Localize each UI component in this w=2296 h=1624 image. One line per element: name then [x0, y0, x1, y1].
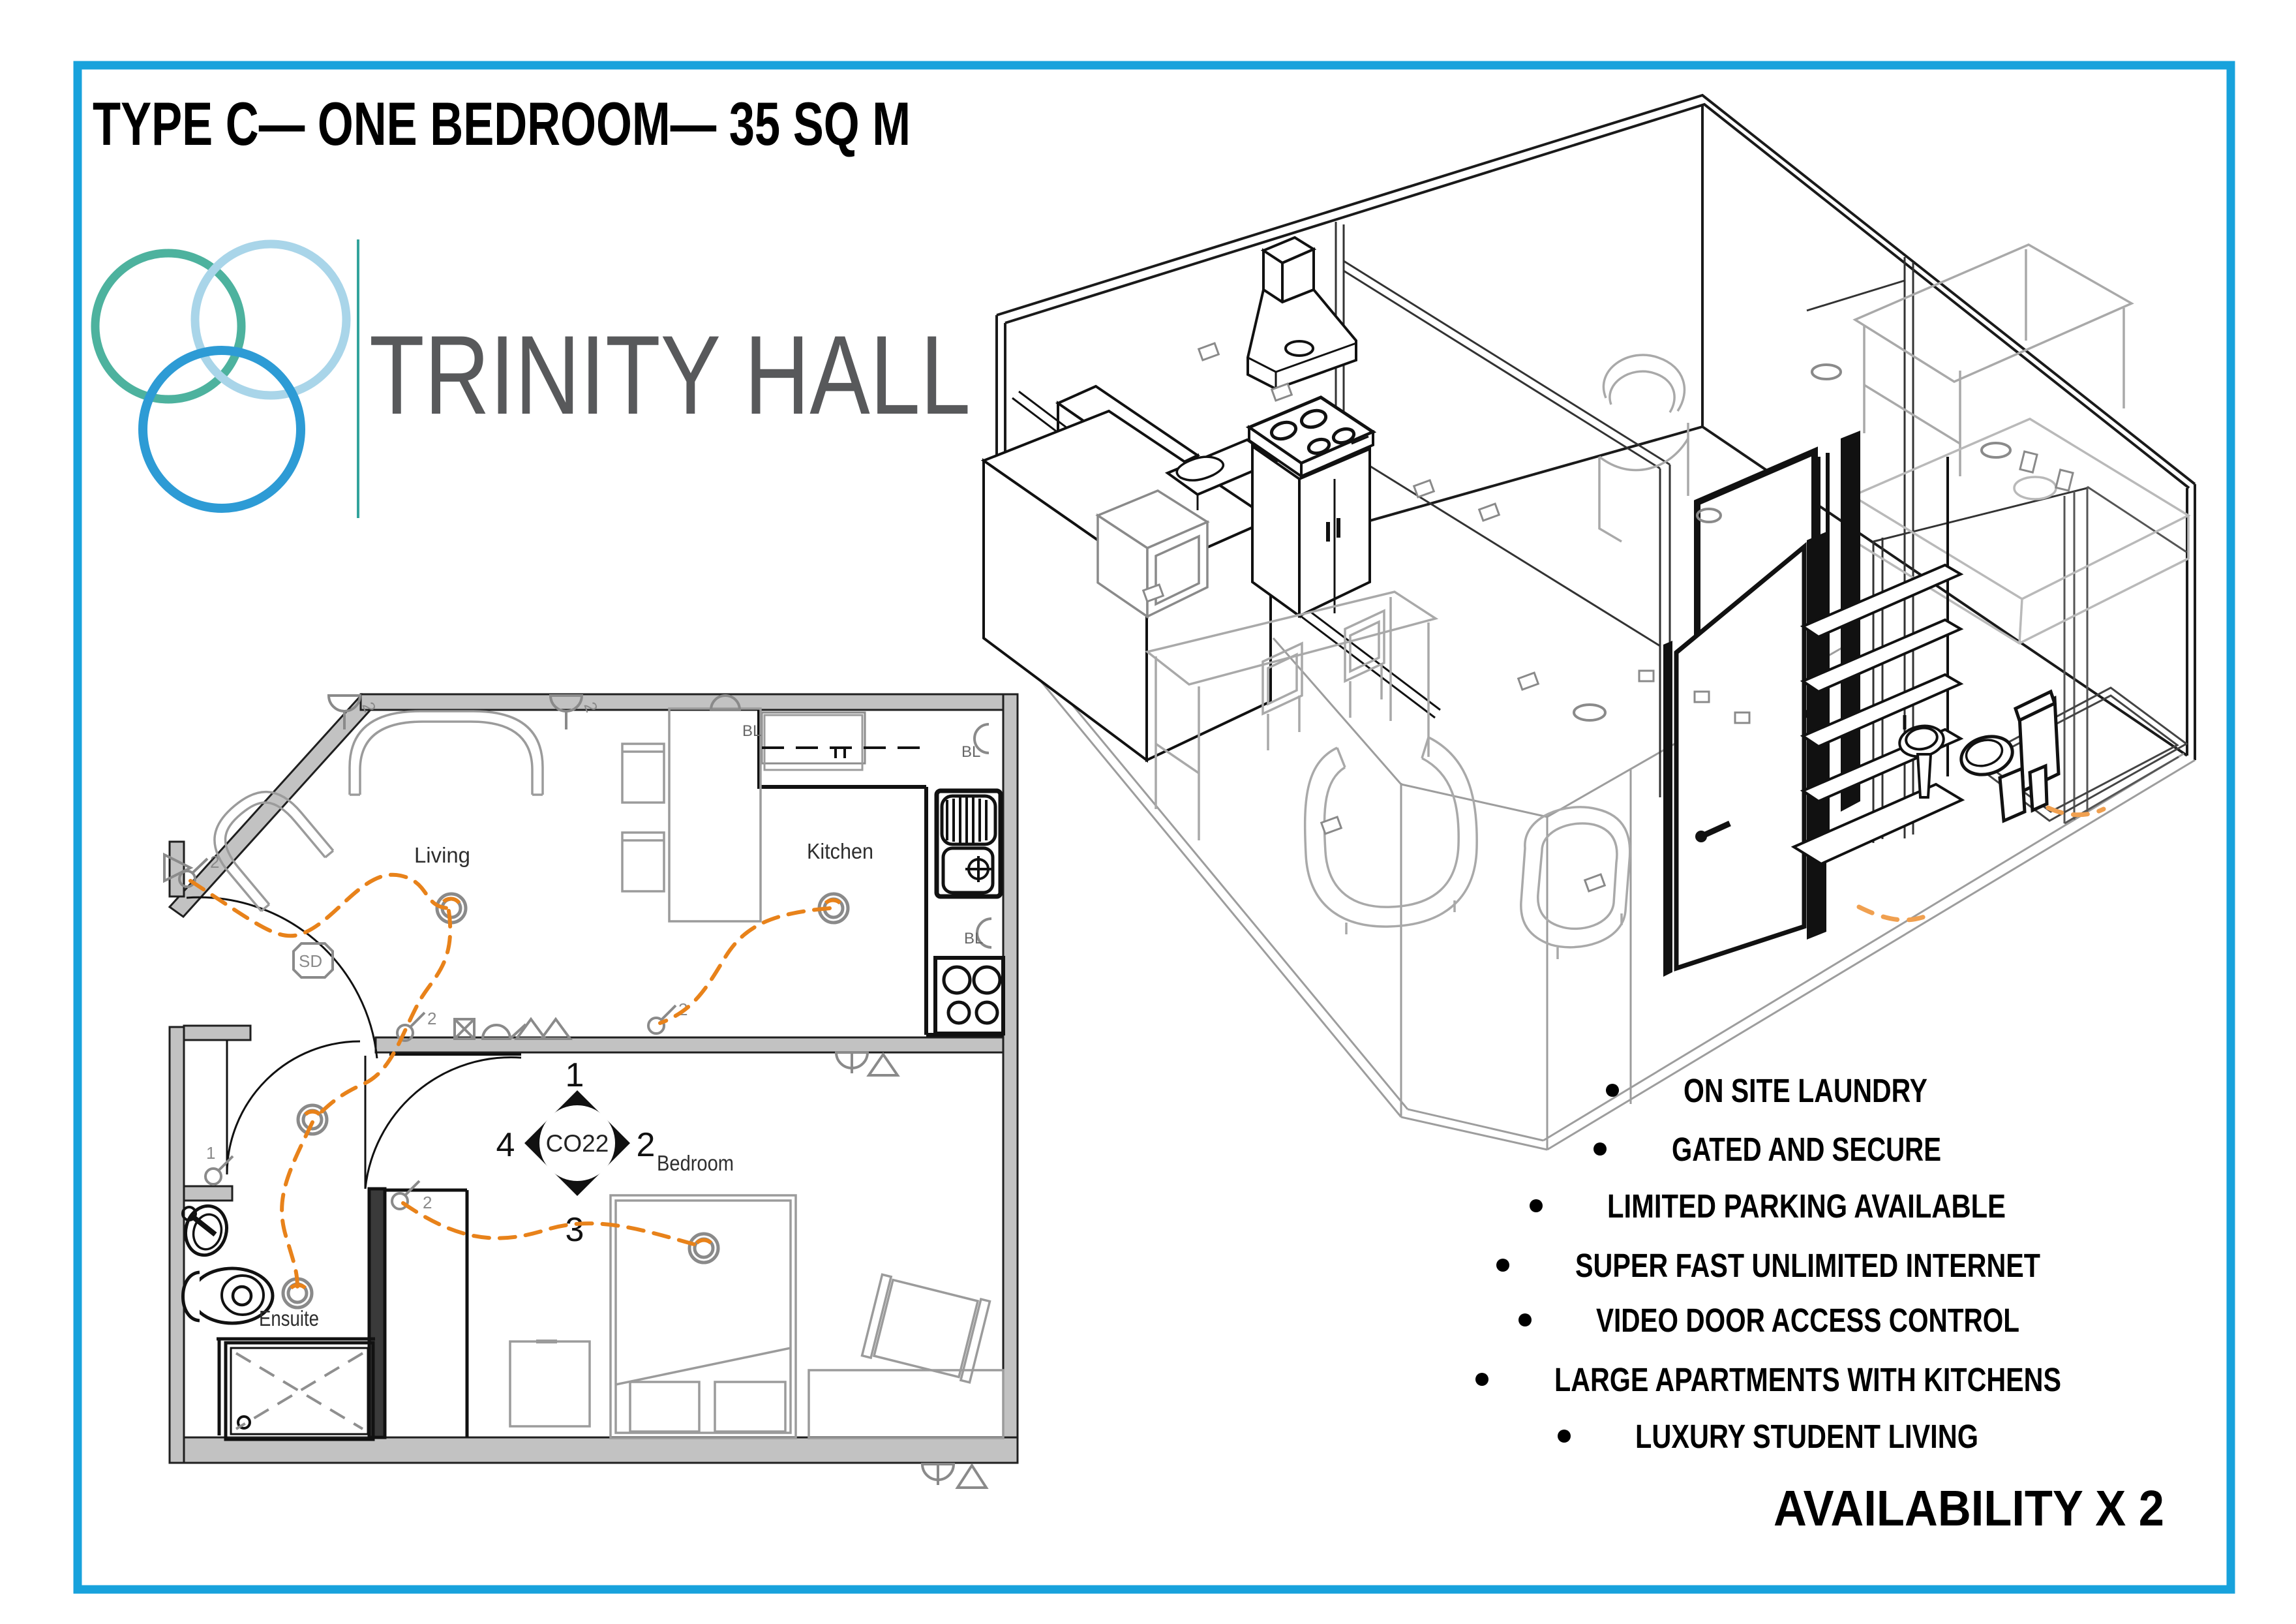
svg-text:Bedroom: Bedroom	[657, 1151, 734, 1175]
svg-text:SUPER FAST UNLIMITED INTERNET: SUPER FAST UNLIMITED INTERNET	[1575, 1247, 2040, 1284]
svg-text:2: 2	[637, 1126, 656, 1164]
svg-text:1: 1	[566, 1056, 584, 1094]
svg-text:Living: Living	[414, 843, 470, 867]
svg-text:1: 1	[206, 1143, 215, 1163]
svg-text:3: 3	[566, 1211, 584, 1249]
svg-text:GATED AND SECURE: GATED AND SECURE	[1672, 1131, 1941, 1168]
svg-text:BL: BL	[964, 930, 983, 947]
svg-text:2: 2	[210, 852, 219, 872]
svg-text:TYPE C— ONE BEDROOM— 35 SQ M: TYPE C— ONE BEDROOM— 35 SQ M	[93, 89, 911, 158]
svg-text:LARGE APARTMENTS WITH KITCHENS: LARGE APARTMENTS WITH KITCHENS	[1554, 1361, 2061, 1398]
svg-text:2: 2	[423, 1193, 432, 1212]
svg-text:ON SITE LAUNDRY: ON SITE LAUNDRY	[1684, 1072, 1927, 1109]
svg-text:SD: SD	[299, 951, 322, 971]
svg-text:BL: BL	[961, 743, 980, 761]
svg-text:2: 2	[427, 1009, 436, 1028]
svg-text:TRINITY HALL: TRINITY HALL	[369, 313, 971, 438]
svg-text:Kitchen: Kitchen	[807, 839, 873, 863]
svg-text:4: 4	[496, 1126, 515, 1164]
svg-text:LUXURY STUDENT LIVING: LUXURY STUDENT LIVING	[1635, 1418, 1978, 1455]
svg-text:LIMITED PARKING AVAILABLE: LIMITED PARKING AVAILABLE	[1607, 1187, 2006, 1225]
svg-text:BL: BL	[742, 722, 761, 740]
svg-text:VIDEO DOOR ACCESS CONTROL: VIDEO DOOR ACCESS CONTROL	[1596, 1302, 2019, 1339]
svg-text:AVAILABILITY X 2: AVAILABILITY X 2	[1774, 1480, 2164, 1537]
svg-text:Ensuite: Ensuite	[259, 1306, 319, 1330]
svg-text:CO22: CO22	[546, 1130, 609, 1157]
